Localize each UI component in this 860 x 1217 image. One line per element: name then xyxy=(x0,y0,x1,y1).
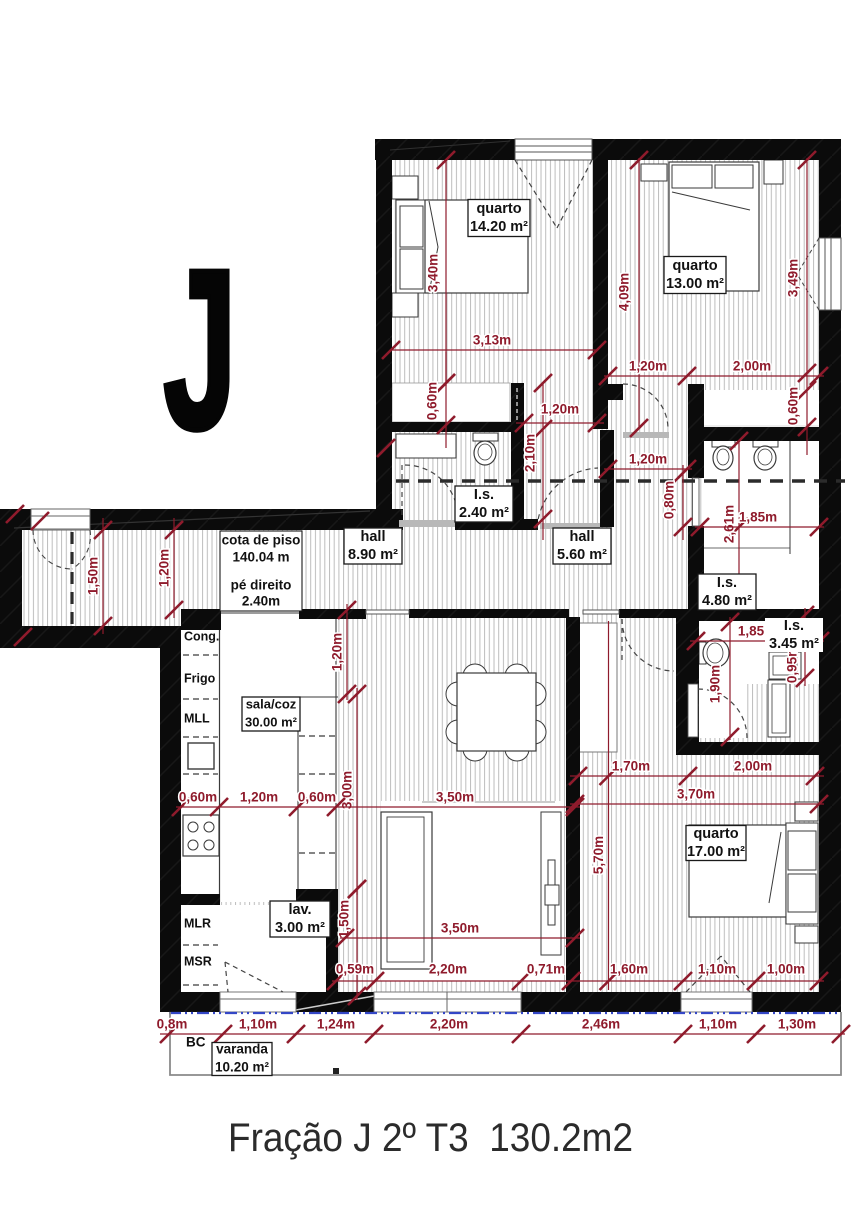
svg-text:0,60m: 0,60m xyxy=(425,382,440,420)
svg-text:quarto: quarto xyxy=(672,258,717,274)
svg-text:3,50m: 3,50m xyxy=(436,790,474,805)
svg-text:3.00 m²: 3.00 m² xyxy=(275,920,325,936)
svg-text:0,80m: 0,80m xyxy=(662,481,677,519)
svg-text:4.80 m²: 4.80 m² xyxy=(702,593,752,609)
svg-text:5.60 m²: 5.60 m² xyxy=(557,547,607,563)
svg-text:Frigo: Frigo xyxy=(184,671,216,685)
svg-text:varanda: varanda xyxy=(216,1042,268,1057)
svg-text:1,50m: 1,50m xyxy=(86,557,101,595)
svg-text:10.20 m²: 10.20 m² xyxy=(215,1060,270,1075)
svg-text:0,60m: 0,60m xyxy=(179,790,217,805)
svg-text:hall: hall xyxy=(570,529,595,545)
svg-text:2.40m: 2.40m xyxy=(242,594,280,609)
svg-text:2,00m: 2,00m xyxy=(733,359,771,374)
svg-text:1,24m: 1,24m xyxy=(317,1017,355,1032)
svg-text:0,59m: 0,59m xyxy=(336,962,374,977)
svg-text:1,30m: 1,30m xyxy=(778,1017,816,1032)
svg-text:14.20 m²: 14.20 m² xyxy=(470,219,528,235)
svg-text:3,50m: 3,50m xyxy=(441,921,479,936)
svg-text:1,90m: 1,90m xyxy=(708,665,723,703)
svg-text:I.s.: I.s. xyxy=(717,575,737,591)
svg-text:0,8m: 0,8m xyxy=(157,1017,188,1032)
svg-text:cota de piso: cota de piso xyxy=(222,533,301,548)
svg-text:1,10m: 1,10m xyxy=(239,1017,277,1032)
svg-text:2,61m: 2,61m xyxy=(722,505,737,543)
svg-text:2.40 m²: 2.40 m² xyxy=(459,505,509,521)
svg-text:1,10m: 1,10m xyxy=(699,1017,737,1032)
svg-text:I.s.: I.s. xyxy=(784,618,804,634)
svg-text:30.00 m²: 30.00 m² xyxy=(245,714,298,729)
svg-text:BC: BC xyxy=(186,1035,206,1050)
svg-text:2,46m: 2,46m xyxy=(582,1017,620,1032)
svg-text:1,00m: 1,00m xyxy=(767,962,805,977)
svg-text:0,60m: 0,60m xyxy=(298,790,336,805)
svg-text:13.00 m²: 13.00 m² xyxy=(666,276,724,292)
svg-text:quarto: quarto xyxy=(476,201,521,217)
svg-text:I.s.: I.s. xyxy=(474,487,494,503)
svg-text:2,20m: 2,20m xyxy=(429,962,467,977)
svg-text:3,49m: 3,49m xyxy=(786,259,801,297)
svg-text:quarto: quarto xyxy=(693,826,738,842)
svg-text:hall: hall xyxy=(361,529,386,545)
svg-text:1,85m: 1,85m xyxy=(739,510,777,525)
svg-text:1,20m: 1,20m xyxy=(157,549,172,587)
svg-text:2,10m: 2,10m xyxy=(523,434,538,472)
svg-text:3,00m: 3,00m xyxy=(340,771,355,809)
svg-text:1,20m: 1,20m xyxy=(629,359,667,374)
svg-text:Fração J 2º T3 130.2m2: Fração J 2º T3 130.2m2 xyxy=(228,1116,633,1160)
svg-text:3,70m: 3,70m xyxy=(677,787,715,802)
svg-text:8.90 m²: 8.90 m² xyxy=(348,547,398,563)
svg-text:3,40m: 3,40m xyxy=(426,254,441,292)
svg-text:140.04 m: 140.04 m xyxy=(232,550,289,565)
svg-text:MSR: MSR xyxy=(184,954,212,968)
svg-text:1,10m: 1,10m xyxy=(698,962,736,977)
svg-text:J: J xyxy=(163,222,237,477)
svg-text:1,20m: 1,20m xyxy=(541,402,579,417)
svg-text:Cong.: Cong. xyxy=(184,629,219,643)
svg-text:2,20m: 2,20m xyxy=(430,1017,468,1032)
svg-text:3.45 m²: 3.45 m² xyxy=(769,636,819,652)
svg-text:2,00m: 2,00m xyxy=(734,759,772,774)
svg-text:pé direito: pé direito xyxy=(231,578,292,593)
svg-text:1,20m: 1,20m xyxy=(240,790,278,805)
svg-text:lav.: lav. xyxy=(288,902,311,918)
svg-text:MLR: MLR xyxy=(184,916,211,930)
svg-text:1,70m: 1,70m xyxy=(612,759,650,774)
svg-text:5,70m: 5,70m xyxy=(591,836,606,874)
svg-text:1,60m: 1,60m xyxy=(610,962,648,977)
svg-text:3,13m: 3,13m xyxy=(473,333,511,348)
svg-text:4,09m: 4,09m xyxy=(617,273,632,311)
svg-text:1,20m: 1,20m xyxy=(330,633,345,671)
svg-text:1,20m: 1,20m xyxy=(629,452,667,467)
svg-text:17.00 m²: 17.00 m² xyxy=(687,844,745,860)
svg-text:0,71m: 0,71m xyxy=(527,962,565,977)
svg-text:sala/coz: sala/coz xyxy=(246,696,297,711)
svg-text:0,60m: 0,60m xyxy=(786,387,801,425)
svg-text:MLL: MLL xyxy=(184,711,210,725)
